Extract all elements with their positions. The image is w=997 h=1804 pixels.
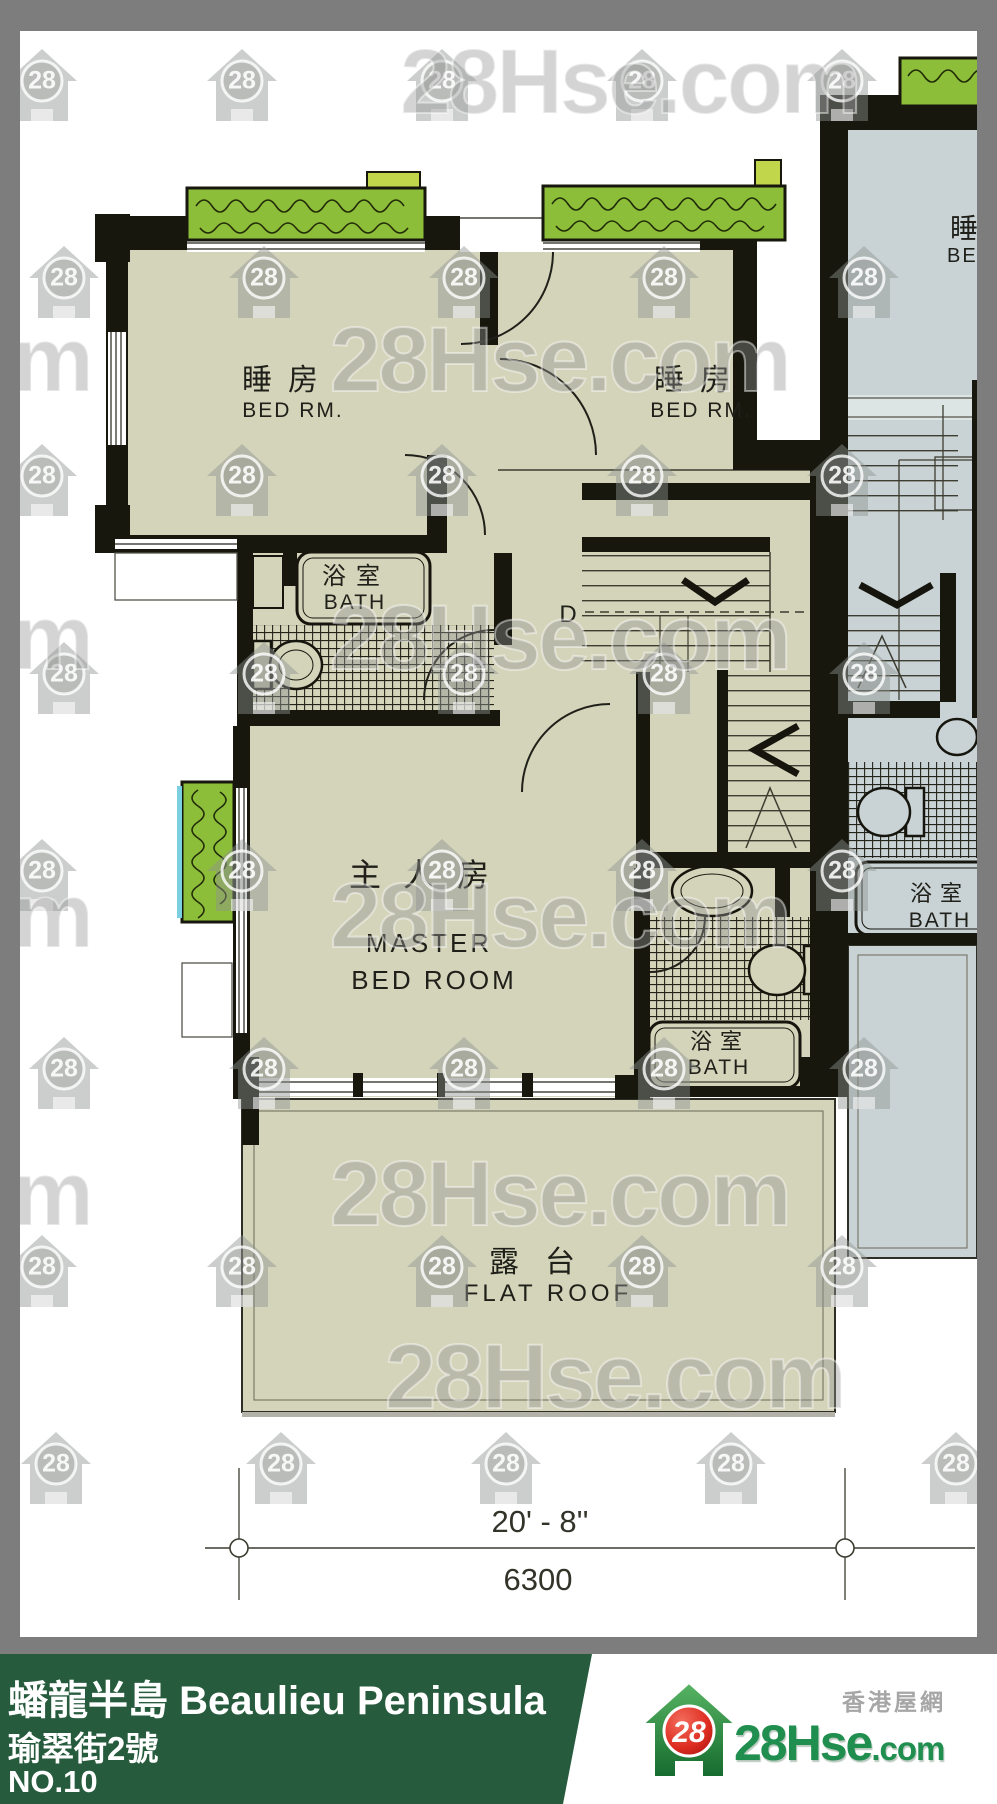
bedroom1-label-zh: 睡房 [242, 364, 334, 397]
dimension: 20' - 8'' 6300 [205, 1468, 975, 1600]
estate-info-banner: 蟠龍半島 Beaulieu Peninsula 瑜翠街2號 NO.10 [0, 1654, 640, 1804]
28hse-logo-icon[interactable]: 28 [642, 1681, 737, 1786]
adj-bath-label-zh: 浴室 [910, 881, 970, 906]
floorplan-page: 睡房 BED RM. 睡房 BED RM. 浴室 BATH D 主人房 MAST… [0, 0, 997, 1804]
master-label-en1: MASTER [366, 928, 492, 958]
toilet-1-icon [253, 641, 322, 689]
bath2-label-zh: 浴室 [690, 1029, 750, 1054]
estate-unit-number: NO.10 [8, 1764, 98, 1800]
bath1-label-en: BATH [324, 591, 386, 614]
adj-bath-label-en: BATH [909, 909, 971, 932]
frame-top [0, 0, 997, 31]
brand-tagline: 香港屋網 [842, 1683, 946, 1717]
bedroom2-label-en: BED RM. [650, 399, 752, 422]
frame-right [977, 31, 997, 1654]
brand-name: 28Hse [734, 1715, 871, 1771]
flatroof-label-en: FLAT ROOF [464, 1280, 632, 1307]
estate-title: 蟠龍半島 Beaulieu Peninsula [8, 1668, 546, 1726]
stair-door-label: D [559, 601, 576, 628]
sink-2-icon [672, 866, 752, 916]
flatroof-label-zh: 露台 [489, 1246, 601, 1279]
dimension-metric: 6300 [504, 1562, 573, 1597]
master-label-zh: 主人房 [349, 857, 511, 893]
footer-bar: 蟠龍半島 Beaulieu Peninsula 瑜翠街2號 NO.10 28 [0, 1654, 997, 1804]
bedroom1-label-en: BED RM. [242, 399, 344, 422]
frame-bottom [0, 1637, 997, 1654]
estate-address: 瑜翠街2號 [8, 1722, 158, 1770]
floor-plan: 睡房 BED RM. 睡房 BED RM. 浴室 BATH D 主人房 MAST… [0, 0, 997, 1804]
bath2-label-en: BATH [688, 1056, 750, 1079]
28hse-brand-text[interactable]: 28Hse.com [734, 1714, 944, 1772]
shower-cabinet-icon [253, 556, 283, 608]
dimension-imperial: 20' - 8'' [491, 1504, 588, 1539]
master-label-en2: BED ROOM [351, 965, 517, 995]
brand-suffix: .com [871, 1730, 944, 1767]
frame-left [0, 31, 20, 1654]
bedroom2-label-zh: 睡房 [654, 364, 746, 397]
bath1-label-zh: 浴室 [322, 563, 390, 590]
logo-badge-number: 28 [671, 1716, 706, 1749]
toilet-2-icon [749, 945, 820, 995]
